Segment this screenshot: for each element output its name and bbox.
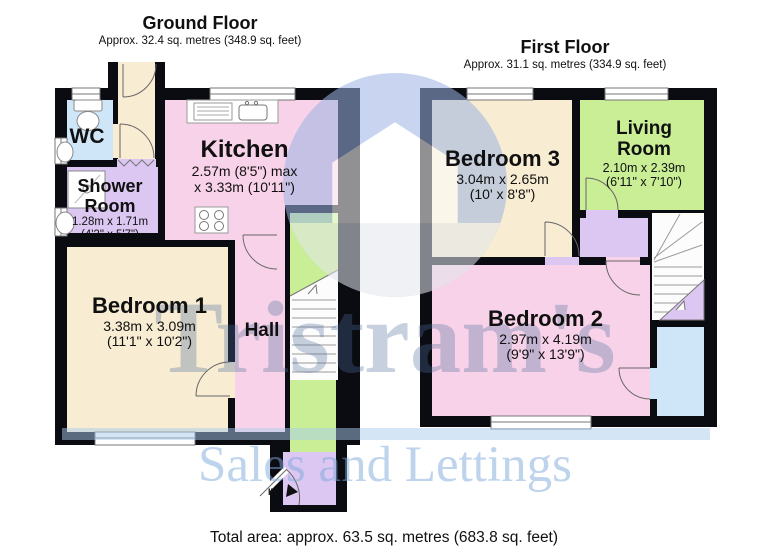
ground-floor-subtitle: Approx. 32.4 sq. metres (348.9 sq. feet)	[50, 35, 350, 48]
ff-landing-area	[580, 218, 648, 257]
ff-stairs-area	[652, 213, 704, 320]
floorplan-page: { "watermark": { "brand": "Tristram's", …	[0, 0, 768, 558]
watermark-tagline: Sales and Lettings	[60, 437, 710, 493]
bedroom1-label: Bedroom 1 3.38m x 3.09m (11'1" x 10'2")	[77, 294, 222, 350]
hall-area	[235, 205, 285, 432]
ff-bathroom-area	[657, 327, 704, 416]
first-floor-subtitle: Approx. 31.1 sq. metres (334.9 sq. feet)	[415, 59, 715, 72]
gf-corridor-green-area	[290, 380, 336, 452]
bedroom3-label: Bedroom 3 3.04m x 2.65m (10' x 8'8")	[430, 147, 575, 203]
total-area-label: Total area: approx. 63.5 sq. metres (683…	[134, 529, 634, 547]
entrance-in-label: IN	[268, 487, 277, 497]
kitchen-label: Kitchen 2.57m (8'5") max x 3.33m (10'11"…	[172, 137, 317, 195]
ground-floor-title: Ground Floor	[50, 13, 350, 33]
first-floor-title: First Floor	[415, 37, 715, 57]
living-room-label: Living Room 2.10m x 2.39m (6'11" x 7'10"…	[595, 118, 693, 189]
wc-label: WC	[63, 125, 111, 149]
entrance-vestibule-area	[283, 452, 336, 505]
bedroom2-label: Bedroom 2 2.97m x 4.19m (9'9" x 13'9")	[473, 307, 618, 363]
rear-lobby-area	[118, 62, 155, 160]
shower-room-label: Shower Room 1.28m x 1.71m (4'2" x 5'7")	[56, 176, 164, 242]
gf-stairs-area	[290, 270, 338, 380]
hall-label: Hall	[234, 320, 290, 341]
